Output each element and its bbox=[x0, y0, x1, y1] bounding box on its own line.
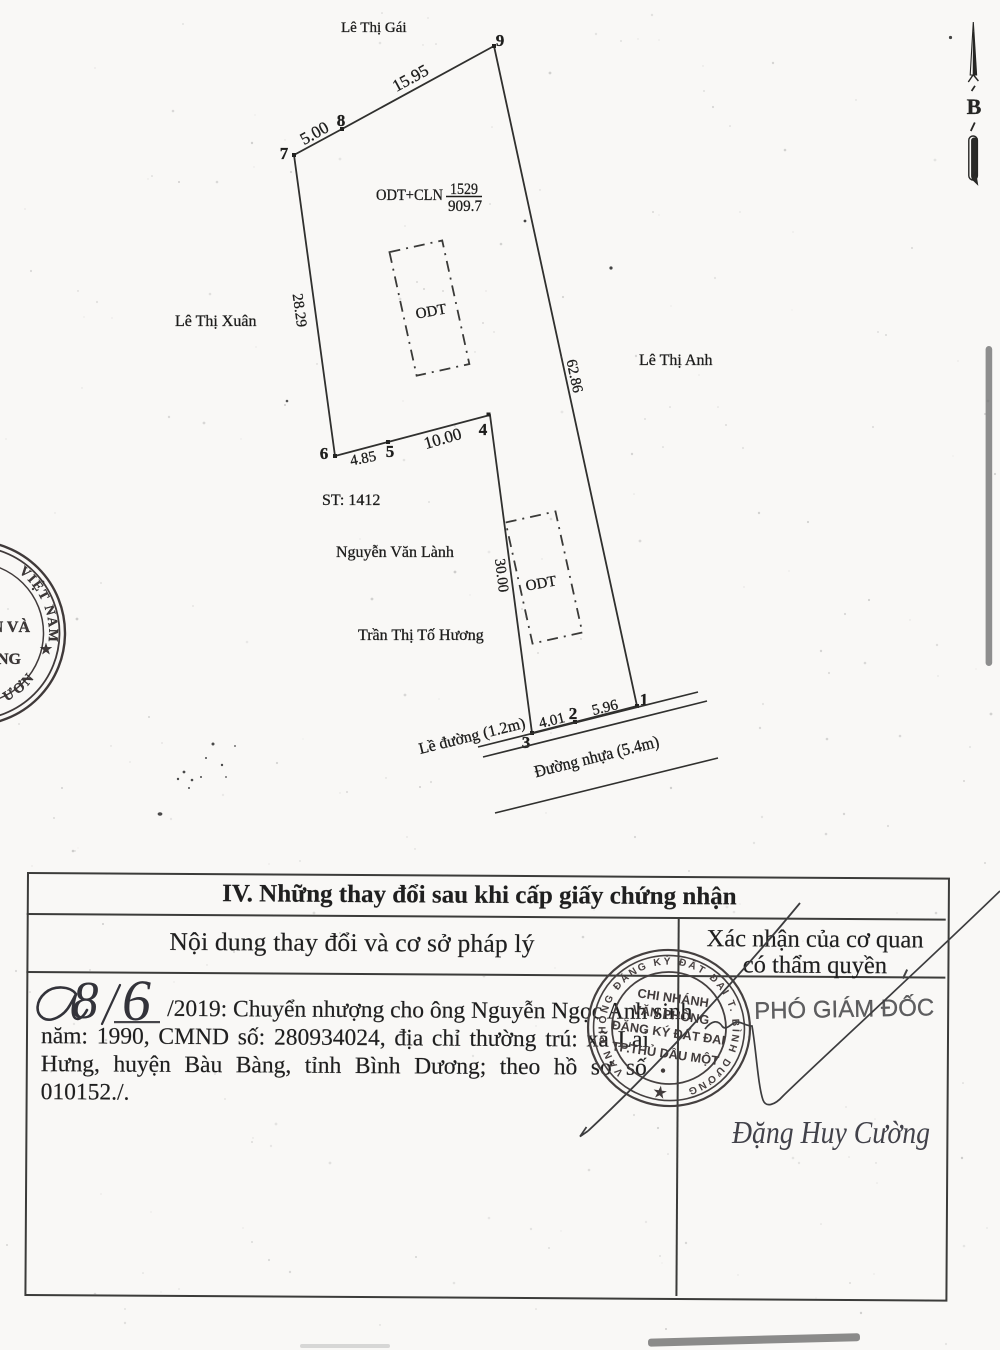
svg-text:Đặng Huy Cường: Đặng Huy Cường bbox=[731, 1114, 930, 1150]
svg-text:★: ★ bbox=[652, 1084, 668, 1103]
svg-text:8: 8 bbox=[72, 972, 99, 1030]
svg-text:6: 6 bbox=[122, 968, 151, 1033]
